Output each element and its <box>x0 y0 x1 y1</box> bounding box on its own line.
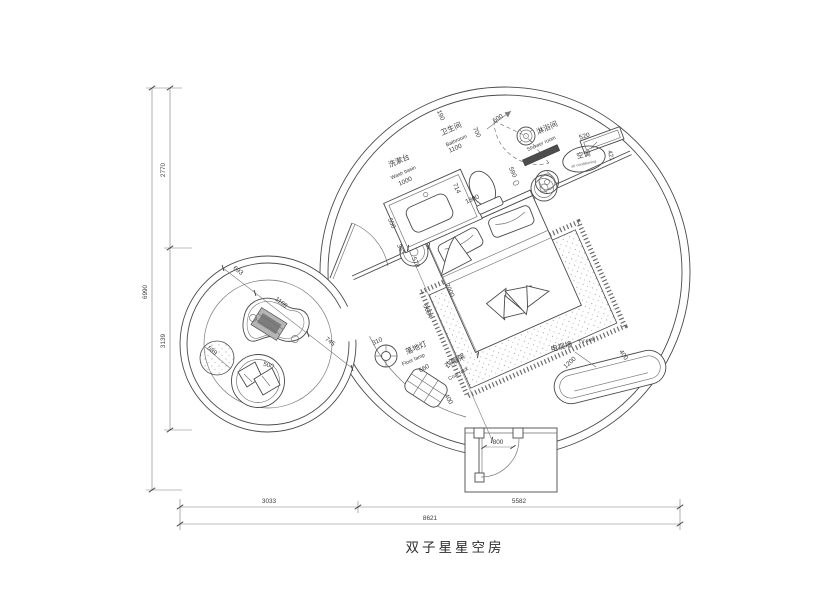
dim-left-upper: 2770 <box>160 162 167 177</box>
floorplan-drawing: 洗漱台 Wash basin 卫生间 Bathroom 淋浴间 Shower r… <box>0 0 837 592</box>
dim-overall-width: 8621 <box>423 515 438 522</box>
drawing-title: 双子星星空房 <box>406 540 505 555</box>
dim-bottom-left: 3033 <box>262 498 277 505</box>
floorplan-canvas: 洗漱台 Wash basin 卫生间 Bathroom 淋浴间 Shower r… <box>0 0 837 592</box>
entrance <box>465 428 557 492</box>
pouf <box>200 341 234 375</box>
dim-left-lower: 3139 <box>160 333 167 348</box>
dim-overall-height: 6990 <box>142 284 149 299</box>
dim-entry-door: 800 <box>493 439 504 446</box>
armchair <box>232 355 285 408</box>
dim-bottom-right: 5582 <box>512 498 527 505</box>
